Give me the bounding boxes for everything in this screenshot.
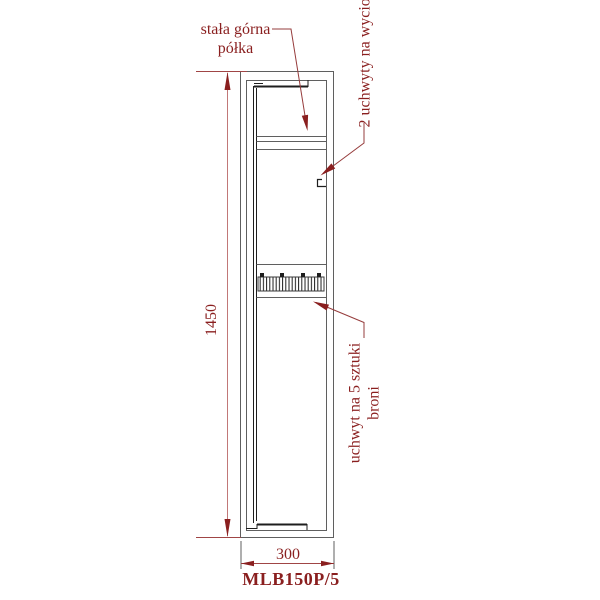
technical-drawing-canvas: stała górna półka 2 uchwyty na wycior uc… <box>0 0 600 600</box>
gun-rest-rack <box>257 265 327 298</box>
dimension-arrow-up <box>225 72 231 90</box>
dimension-arrow-right <box>321 561 334 567</box>
gun-holder-label-line1: uchwyt na 5 sztuki <box>346 336 365 471</box>
height-dimension-text: 1450 <box>202 288 222 352</box>
gun-holder-label: uchwyt na 5 sztuki broni <box>346 336 384 471</box>
rod-holders-label: 2 uchwyty na wycior <box>356 3 376 128</box>
top-shelf-label: stała górna półka <box>185 20 286 58</box>
leader-arrow-shelf <box>302 115 311 132</box>
drawing-linework <box>0 0 600 600</box>
bottom-panel-detail <box>246 524 307 530</box>
model-number: MLB150P/5 <box>206 570 376 589</box>
dimension-arrow-left <box>241 561 254 567</box>
top-shelf-lines <box>257 137 327 150</box>
width-dimension-text: 300 <box>258 545 318 564</box>
cleaning-rod-bracket <box>318 180 327 187</box>
door-panel-lines <box>254 86 257 523</box>
top-shelf-label-line2: półka <box>185 39 286 58</box>
gun-holder-label-line2: broni <box>365 336 384 471</box>
dimension-arrow-down <box>225 519 231 537</box>
top-shelf-label-line1: stała górna <box>185 20 286 39</box>
